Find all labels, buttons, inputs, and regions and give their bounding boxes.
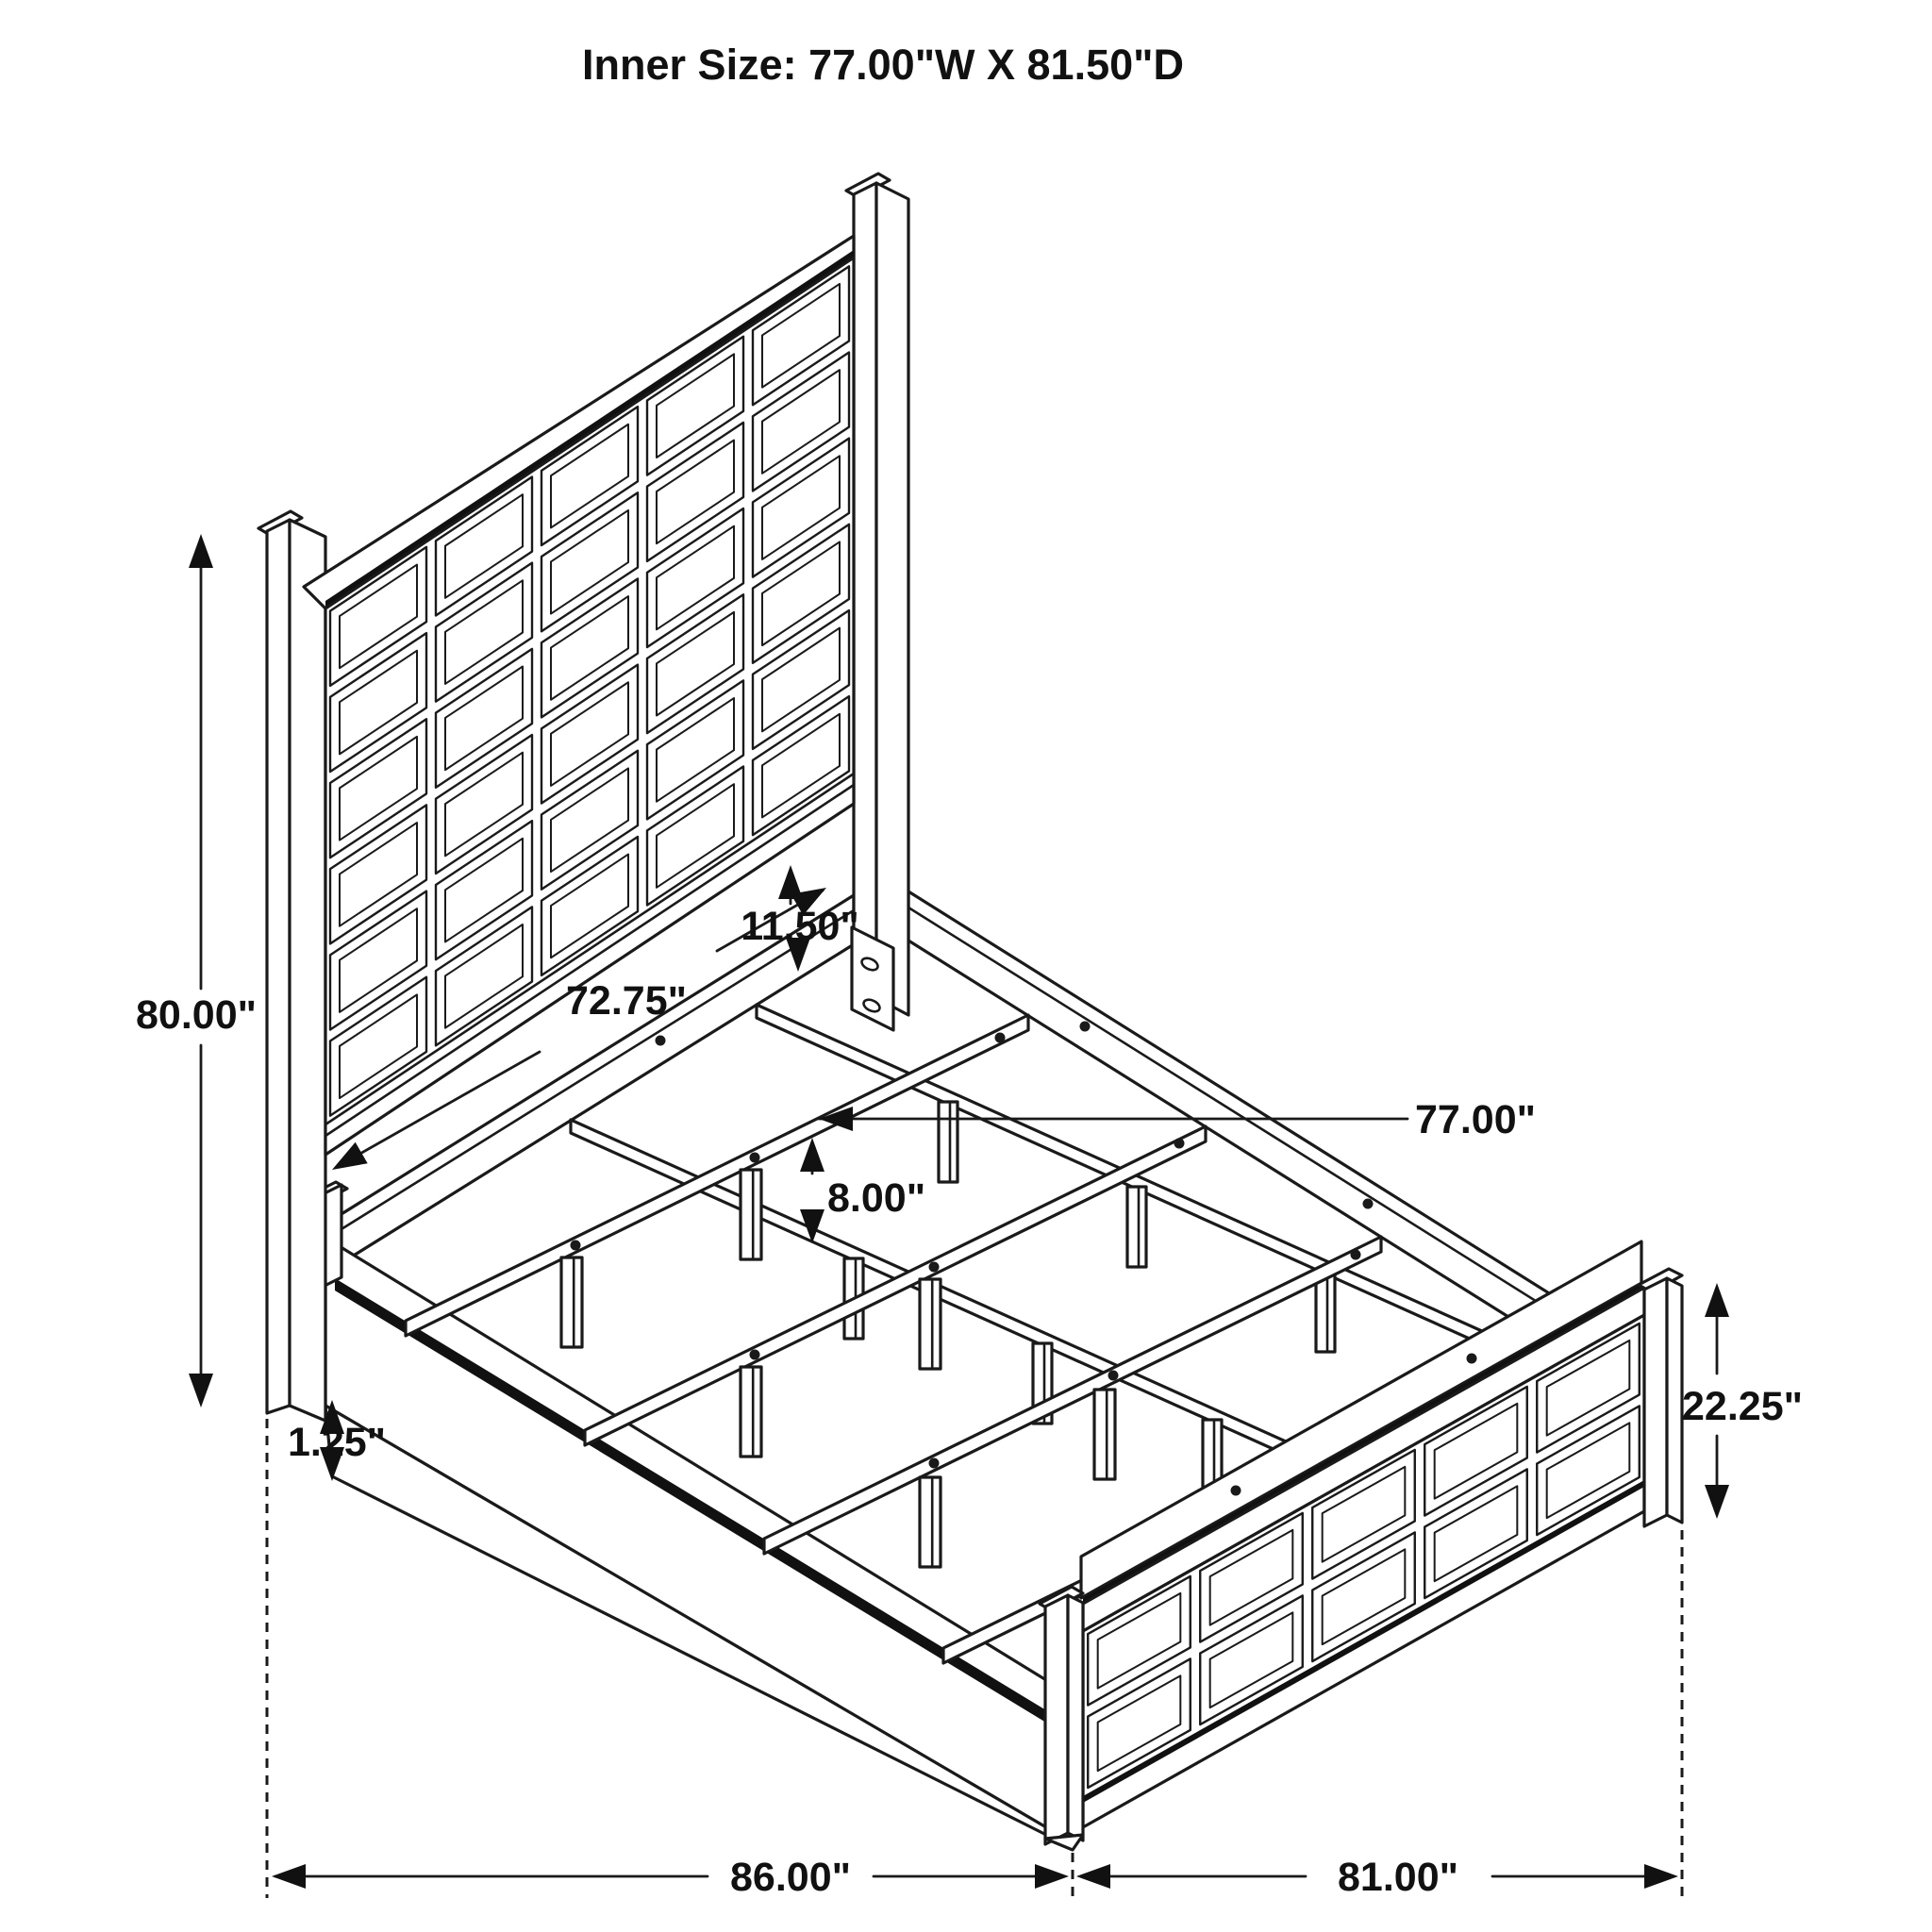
near-side-rail [289, 1182, 1075, 1848]
footboard [1040, 1241, 1682, 1850]
diagram-title: Inner Size: 77.00"W X 81.50"D [582, 41, 1184, 89]
diagram-canvas: Inner Size: 77.00"W X 81.50"D 80.00" 72.… [0, 0, 1932, 1932]
dim-label-headboard-height: 80.00" [136, 992, 257, 1038]
bed-frame-dimension-diagram: Inner Size: 77.00"W X 81.50"D 80.00" 72.… [0, 0, 1932, 1932]
dim-label-rail-gap: 11.50" [741, 904, 859, 949]
dim-label-overall-width: 81.00" [1338, 1855, 1458, 1900]
dim-label-headboard-panel-width: 72.75" [566, 978, 687, 1024]
dim-label-slat-leg-height: 8.00" [827, 1175, 925, 1221]
dim-label-overall-length: 86.00" [730, 1855, 851, 1900]
dim-label-footboard-height: 22.25" [1682, 1384, 1803, 1429]
dim-label-inner-width: 77.00" [1415, 1097, 1536, 1142]
dim-label-base-height: 1.25" [288, 1420, 386, 1465]
